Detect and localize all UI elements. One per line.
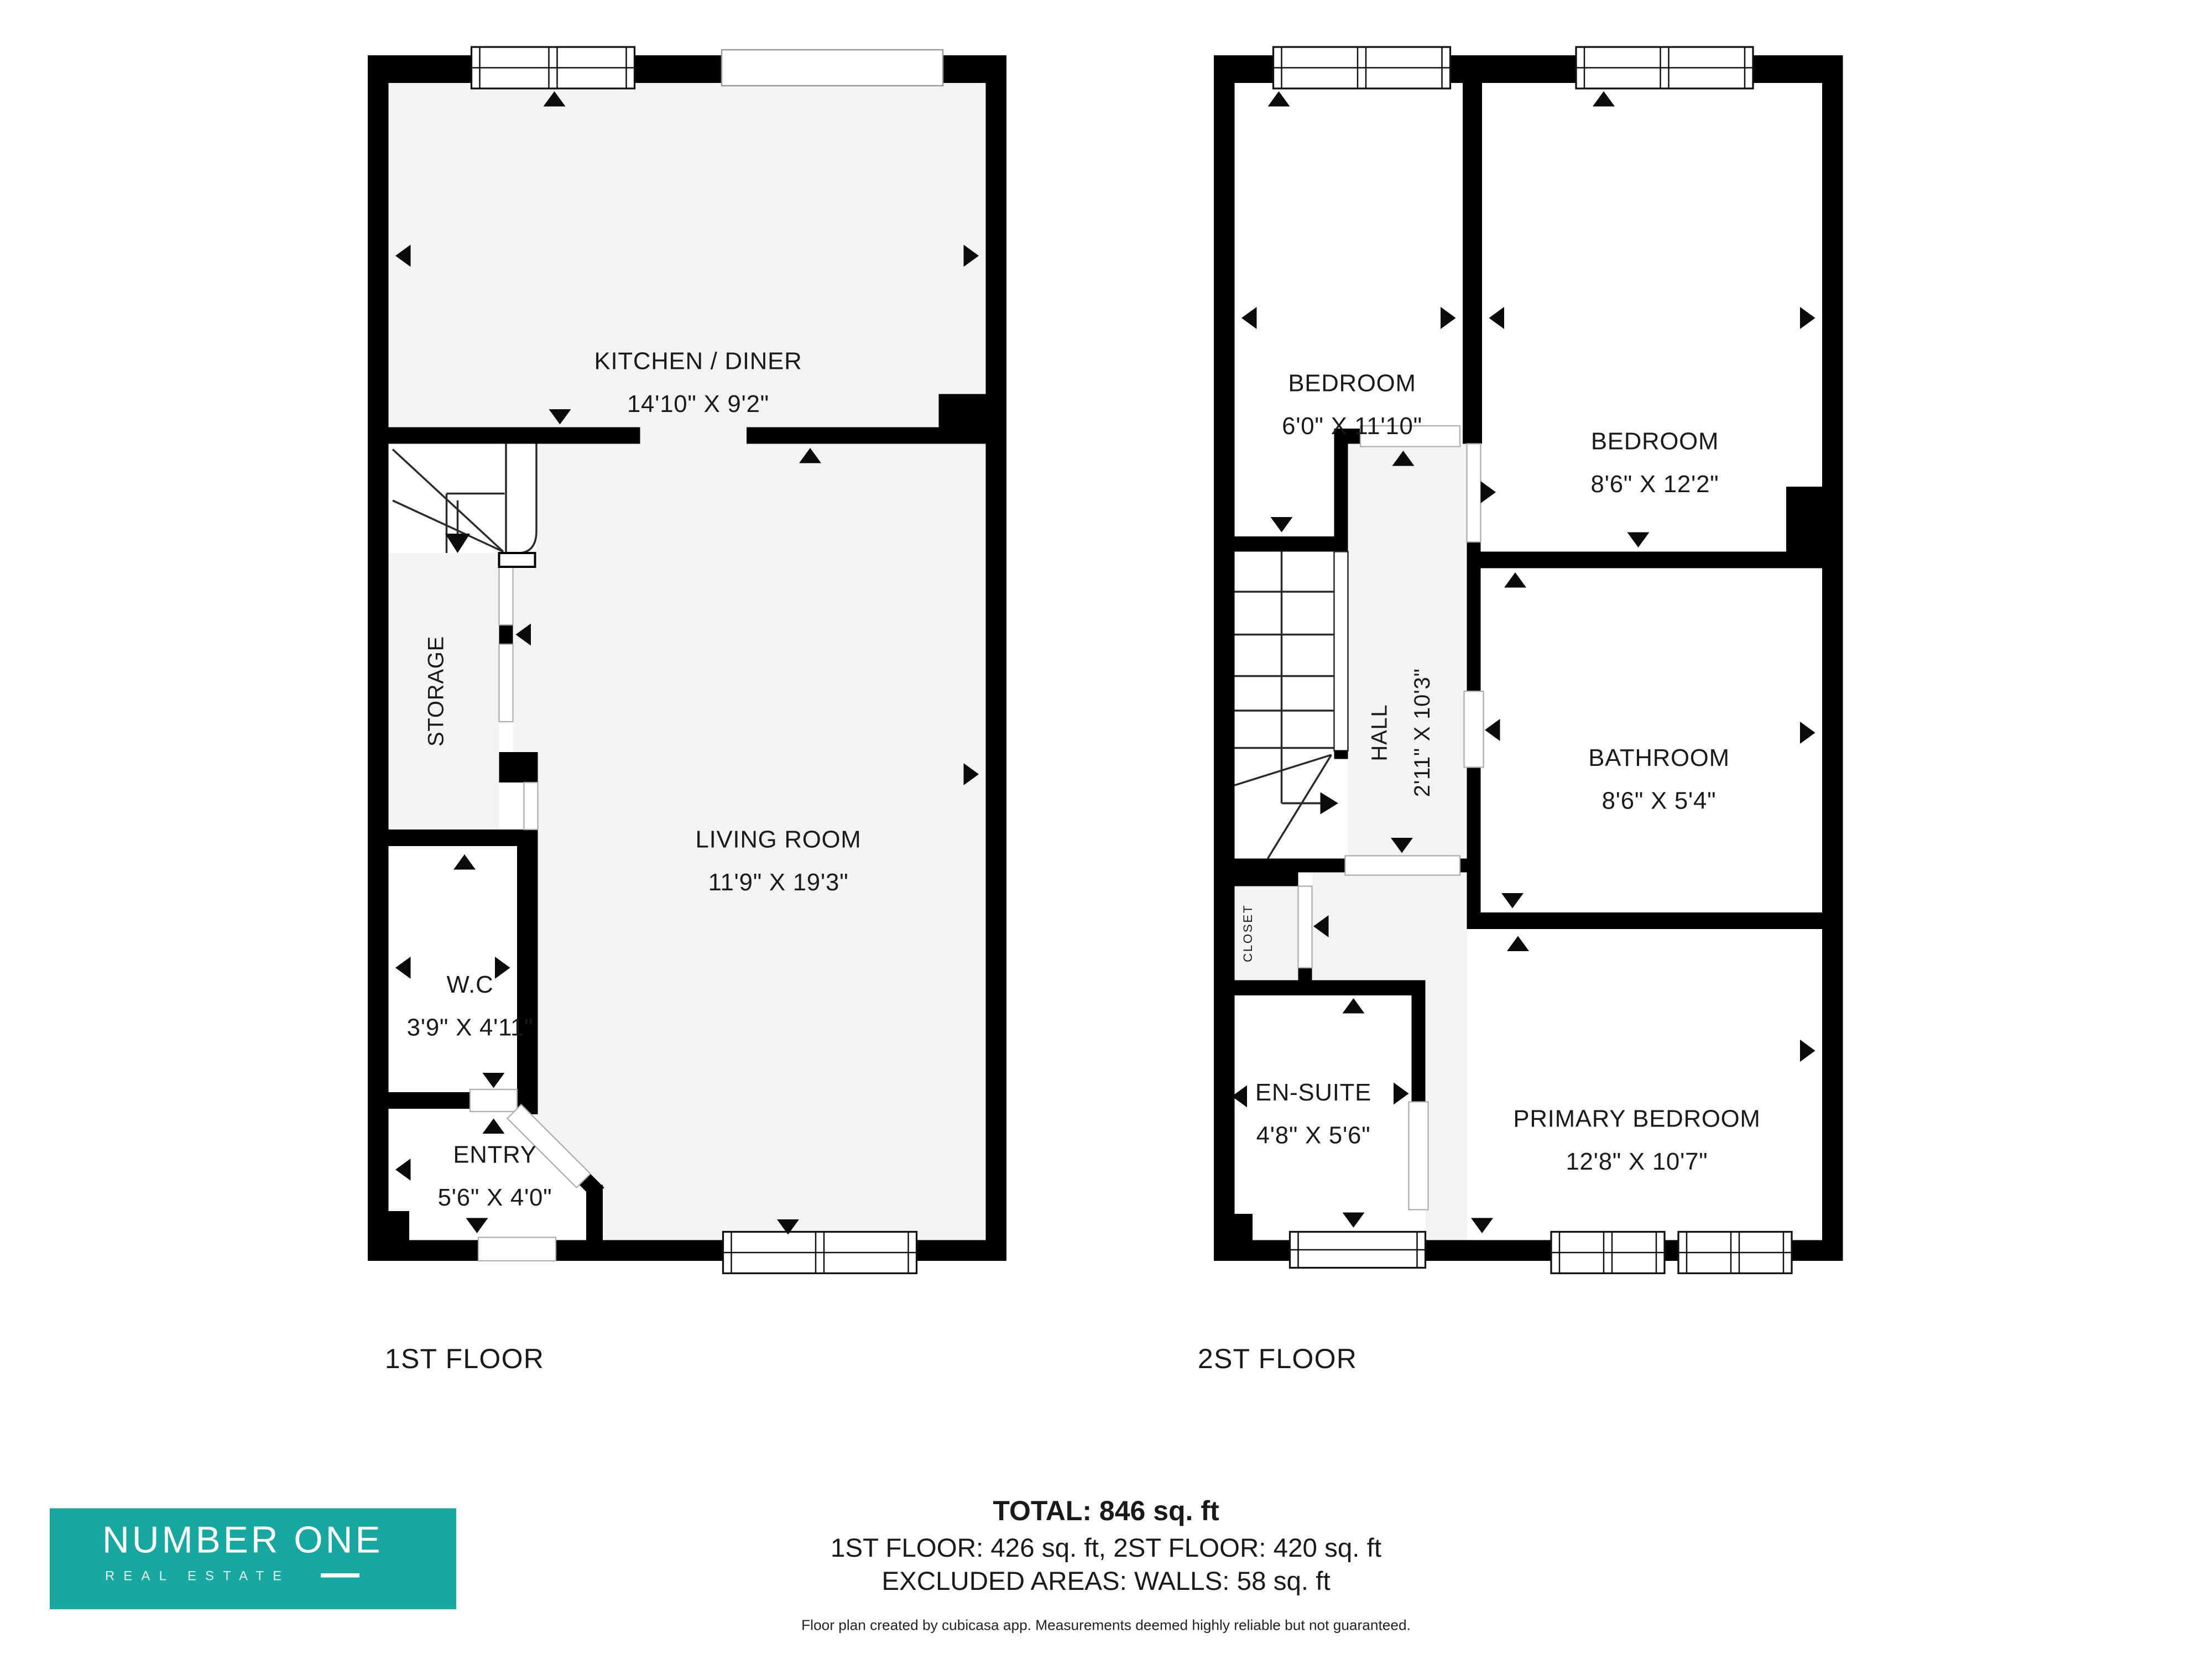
door-marker-icon — [1507, 936, 1529, 952]
door-marker-icon — [1441, 307, 1456, 329]
door-marker-icon — [1343, 1213, 1365, 1228]
door-marker-icon — [483, 1073, 505, 1088]
floor-plan-drawing — [0, 0, 2212, 1659]
stairs-floor2 — [1235, 552, 1348, 859]
logo-title: NUMBER ONE — [102, 1520, 383, 1563]
logo-o-underline — [321, 1573, 359, 1578]
room-label-bedroom-1: BEDROOM 6'0" X 11'10" — [1282, 362, 1422, 448]
floor-plan-page: KITCHEN / DINER 14'10" X 9'2" LIVING ROO… — [0, 0, 2212, 1659]
room-label-bathroom: BATHROOM 8'6" X 5'4" — [1588, 737, 1730, 823]
door-marker-icon — [483, 1119, 505, 1134]
number-one-real-estate-logo: NUMBER ONE REAL ESTATE — [50, 1509, 456, 1610]
door-marker-icon — [1241, 307, 1257, 329]
door-marker-icon — [1343, 998, 1365, 1014]
window-icon — [1576, 47, 1753, 88]
door-marker-icon — [1627, 533, 1650, 548]
door-marker-icon — [466, 1218, 488, 1234]
window-icon — [1678, 1232, 1792, 1274]
door-marker-icon — [1268, 91, 1290, 107]
disclaimer-text: Floor plan created by cubicasa app. Meas… — [801, 1618, 1411, 1634]
room-label-storage: STORAGE — [422, 636, 466, 747]
room-label-kitchen-diner: KITCHEN / DINER 14'10" X 9'2" — [594, 340, 802, 426]
door-marker-icon — [1800, 722, 1815, 744]
excluded-areas-text: EXCLUDED AREAS: WALLS: 58 sq. ft — [881, 1568, 1330, 1598]
door-marker-icon — [453, 854, 476, 870]
room-label-hall: HALL 2'11" X 10'3" — [1366, 669, 1452, 797]
door-marker-icon — [1800, 307, 1815, 329]
door-marker-icon — [1271, 517, 1293, 533]
door-marker-icon — [1593, 91, 1615, 107]
window-icon — [1551, 1232, 1665, 1274]
room-label-living-room: LIVING ROOM 11'9" X 19'3" — [696, 818, 862, 904]
door-marker-icon — [1800, 1040, 1815, 1062]
room-label-en-suite: EN-SUITE 4'8" X 5'6" — [1255, 1072, 1371, 1157]
floor1-title: 1ST FLOOR — [385, 1344, 544, 1376]
floor-areas-text: 1ST FLOOR: 426 sq. ft, 2ST FLOOR: 420 sq… — [831, 1535, 1381, 1565]
window-icon — [723, 1232, 917, 1274]
room-label-primary-bedroom: PRIMARY BEDROOM 12'8" X 10'7" — [1513, 1098, 1760, 1183]
total-area-text: TOTAL: 846 sq. ft — [993, 1496, 1219, 1528]
window-icon — [722, 50, 943, 86]
room-label-bedroom-2: BEDROOM 8'6" X 12'2" — [1591, 420, 1719, 506]
door-marker-icon — [1485, 719, 1500, 741]
window-icon — [1274, 47, 1451, 88]
room-label-wc: W.C 3'9" X 4'11" — [407, 964, 534, 1050]
door-marker-icon — [1504, 572, 1526, 588]
window-icon — [1290, 1232, 1426, 1268]
room-label-entry: ENTRY 5'6" X 4'0" — [438, 1134, 552, 1219]
door-marker-icon — [1489, 307, 1505, 329]
floor-fills — [389, 83, 1467, 1240]
room-label-closet: CLOSET — [1241, 904, 1284, 962]
stairs-floor1 — [393, 444, 536, 567]
window-icon — [472, 47, 635, 88]
door-marker-icon — [1501, 893, 1524, 909]
door-marker-icon — [395, 1159, 411, 1181]
door-marker-icon — [1481, 481, 1496, 503]
logo-subtitle: REAL ESTATE — [105, 1569, 290, 1585]
door-marker-icon — [1471, 1218, 1493, 1234]
door-marker-icon — [1394, 1083, 1409, 1105]
floor2-title: 2ST FLOOR — [1198, 1344, 1357, 1376]
